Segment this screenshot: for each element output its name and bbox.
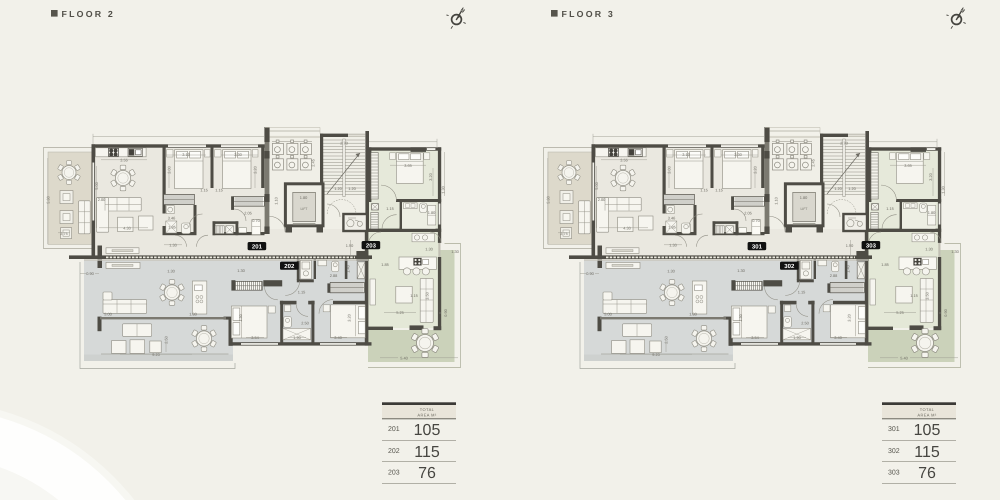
svg-text:1.30: 1.30	[451, 249, 459, 254]
svg-text:3.20: 3.20	[346, 313, 351, 321]
svg-text:301: 301	[752, 243, 763, 250]
svg-text:302: 302	[784, 263, 795, 270]
svg-text:3.10: 3.10	[182, 152, 190, 157]
svg-text:1.80: 1.80	[300, 195, 308, 200]
svg-text:AREA M²: AREA M²	[917, 412, 937, 417]
svg-text:2.05: 2.05	[244, 211, 252, 216]
svg-text:0.70: 0.70	[252, 218, 260, 223]
svg-text:1.80: 1.80	[428, 210, 436, 215]
svg-text:1.30: 1.30	[425, 247, 433, 252]
svg-text:202: 202	[284, 263, 295, 270]
svg-text:2.00: 2.00	[98, 197, 106, 202]
svg-text:302: 302	[888, 448, 900, 455]
svg-text:1.15: 1.15	[410, 293, 418, 298]
svg-text:201: 201	[252, 243, 263, 250]
svg-text:115: 115	[414, 444, 440, 461]
svg-text:201: 201	[388, 426, 400, 433]
svg-text:1.15: 1.15	[298, 290, 306, 295]
svg-text:1.10: 1.10	[273, 196, 278, 204]
svg-text:202: 202	[388, 448, 400, 455]
svg-text:FLOOR 3: FLOOR 3	[562, 9, 616, 19]
svg-text:115: 115	[914, 444, 940, 461]
svg-text:303: 303	[888, 469, 900, 476]
svg-text:FLOOR 2: FLOOR 2	[62, 9, 116, 19]
svg-text:0.90: 0.90	[86, 271, 94, 276]
svg-text:3.50: 3.50	[424, 291, 429, 299]
svg-text:0.90: 0.90	[443, 308, 448, 316]
svg-text:4.30: 4.30	[123, 226, 131, 231]
svg-text:76: 76	[918, 465, 936, 482]
svg-text:3.46: 3.46	[168, 216, 176, 221]
svg-text:2.45: 2.45	[311, 159, 316, 167]
svg-text:1.85: 1.85	[168, 225, 176, 230]
svg-text:2.50: 2.50	[301, 321, 309, 326]
svg-text:1.50: 1.50	[346, 243, 354, 248]
svg-text:2.88: 2.88	[330, 273, 338, 278]
svg-text:LIFT: LIFT	[301, 207, 308, 211]
svg-text:303: 303	[866, 242, 877, 249]
svg-text:301: 301	[888, 426, 900, 433]
svg-text:105: 105	[414, 422, 441, 439]
svg-text:5.00: 5.00	[104, 312, 112, 317]
svg-text:1.20: 1.20	[334, 186, 342, 191]
svg-text:3.30: 3.30	[234, 152, 242, 157]
svg-text:5.40: 5.40	[400, 355, 408, 360]
svg-text:1.15: 1.15	[386, 206, 394, 211]
svg-text:1.30: 1.30	[237, 268, 245, 273]
svg-text:3.65: 3.65	[404, 163, 412, 168]
svg-text:2.75: 2.75	[60, 231, 68, 236]
svg-text:9.20: 9.20	[152, 352, 160, 357]
svg-text:3.20: 3.20	[428, 172, 433, 180]
svg-text:76: 76	[418, 465, 436, 482]
svg-text:1.15: 1.15	[200, 188, 208, 193]
svg-text:1.30: 1.30	[167, 268, 175, 273]
svg-text:1.40: 1.40	[346, 264, 351, 272]
svg-text:1.85: 1.85	[381, 262, 389, 267]
svg-text:105: 105	[914, 422, 941, 439]
svg-text:1.20: 1.20	[348, 186, 356, 191]
svg-text:2.70: 2.70	[340, 141, 348, 146]
svg-text:1.15: 1.15	[215, 188, 223, 193]
svg-text:1.30: 1.30	[169, 243, 177, 248]
svg-text:1.80: 1.80	[189, 312, 197, 317]
svg-text:203: 203	[366, 242, 377, 249]
svg-text:203: 203	[388, 469, 400, 476]
svg-text:AREA M²: AREA M²	[417, 412, 437, 417]
svg-text:1.30: 1.30	[238, 313, 243, 321]
